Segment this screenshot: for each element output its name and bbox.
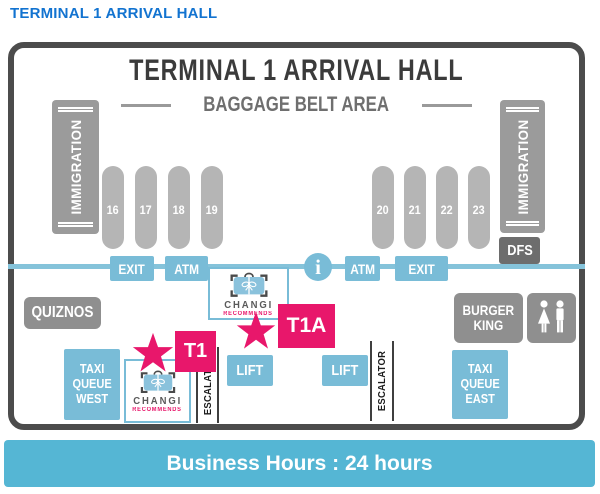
t1-star-marker <box>132 332 174 374</box>
burger-king-label: BURGER KING <box>463 303 515 333</box>
label-line: QUEUE <box>72 377 111 392</box>
restroom-icons <box>532 298 572 338</box>
map-subtitle-text: BAGGAGE BELT AREA <box>204 93 390 117</box>
label-line: BURGER <box>463 303 515 318</box>
divider <box>506 107 539 112</box>
belt-number: 17 <box>140 203 152 217</box>
escalator-label: ESCALATOR <box>376 351 388 411</box>
t1a-marker: T1A <box>278 304 335 348</box>
immigration-zone-east: IMMIGRATION <box>500 100 545 233</box>
map-title-text: TERMINAL 1 ARRIVAL HALL <box>129 54 463 88</box>
belt-number: 22 <box>441 203 453 217</box>
dfs-label: DFS <box>507 242 533 259</box>
exit-label: EXIT <box>119 261 145 277</box>
label-line: QUEUE <box>460 377 499 392</box>
suitcase-icon <box>227 271 271 299</box>
quiznos-store: QUIZNOS <box>24 297 101 329</box>
lift-west: LIFT <box>227 355 273 386</box>
dfs-store: DFS <box>499 237 540 264</box>
belt-18: 18 <box>168 166 190 249</box>
business-hours-text: Business Hours : 24 hours <box>166 452 432 476</box>
belt-number: 20 <box>377 203 389 217</box>
label-line: KING <box>463 318 515 333</box>
subtitle-dash-right <box>422 104 472 107</box>
belt-number: 16 <box>107 203 119 217</box>
page-title: TERMINAL 1 ARRIVAL HALL <box>10 5 217 22</box>
business-hours-bar: Business Hours : 24 hours <box>4 440 595 487</box>
star-icon <box>133 333 173 372</box>
belt-22: 22 <box>436 166 458 249</box>
belt-number: 19 <box>206 203 218 217</box>
t1a-star-marker <box>236 311 276 351</box>
divider <box>58 107 93 112</box>
map-title: TERMINAL 1 ARRIVAL HALL <box>8 54 585 88</box>
booth-brand: CHANGI <box>224 300 273 311</box>
taxi-queue-west: TAXI QUEUE WEST <box>64 349 120 420</box>
lift-label: LIFT <box>332 362 359 379</box>
taxi-west-label: TAXI QUEUE WEST <box>72 362 111 407</box>
belt-19: 19 <box>201 166 223 249</box>
atm-label: ATM <box>350 261 375 277</box>
divider <box>58 222 93 227</box>
immigration-label: IMMIGRATION <box>68 119 84 214</box>
booth-brand: CHANGI <box>133 396 182 407</box>
escalator-east: ESCALATOR <box>370 341 394 421</box>
atm-west-sign: ATM <box>165 256 208 281</box>
belt-20: 20 <box>372 166 394 249</box>
quiznos-label: QUIZNOS <box>32 304 94 322</box>
booth-brand-sub: RECOMMENDS <box>133 407 182 413</box>
atm-east-sign: ATM <box>345 256 380 281</box>
label-line: TAXI <box>460 362 499 377</box>
exit-east-sign: EXIT <box>395 256 448 281</box>
belt-number: 18 <box>173 203 185 217</box>
belt-number: 21 <box>409 203 421 217</box>
label-line: EAST <box>460 392 499 407</box>
t1-label: T1 <box>184 340 207 363</box>
belt-23: 23 <box>468 166 490 249</box>
belt-number: 23 <box>473 203 485 217</box>
taxi-queue-east: TAXI QUEUE EAST <box>452 350 508 419</box>
divider <box>506 221 539 226</box>
burger-king-store: BURGER KING <box>454 293 523 343</box>
exit-label: EXIT <box>408 261 434 277</box>
label-line: TAXI <box>72 362 111 377</box>
taxi-east-label: TAXI QUEUE EAST <box>460 362 499 407</box>
restroom-sign <box>527 293 576 343</box>
information-icon: i <box>304 253 332 281</box>
t1a-label: T1A <box>287 314 327 338</box>
info-glyph: i <box>315 255 321 280</box>
subtitle-dash-left <box>121 104 171 107</box>
immigration-zone-west: IMMIGRATION <box>52 100 99 234</box>
belt-16: 16 <box>102 166 124 249</box>
label-line: WEST <box>72 392 111 407</box>
atm-label: ATM <box>174 261 199 277</box>
t1-marker: T1 <box>175 331 216 372</box>
lift-east: LIFT <box>322 355 368 386</box>
lift-label: LIFT <box>237 362 264 379</box>
star-icon <box>237 312 275 349</box>
immigration-label: IMMIGRATION <box>515 119 531 214</box>
belt-21: 21 <box>404 166 426 249</box>
belt-17: 17 <box>135 166 157 249</box>
exit-west-sign: EXIT <box>110 256 154 281</box>
concourse-line <box>8 264 585 269</box>
